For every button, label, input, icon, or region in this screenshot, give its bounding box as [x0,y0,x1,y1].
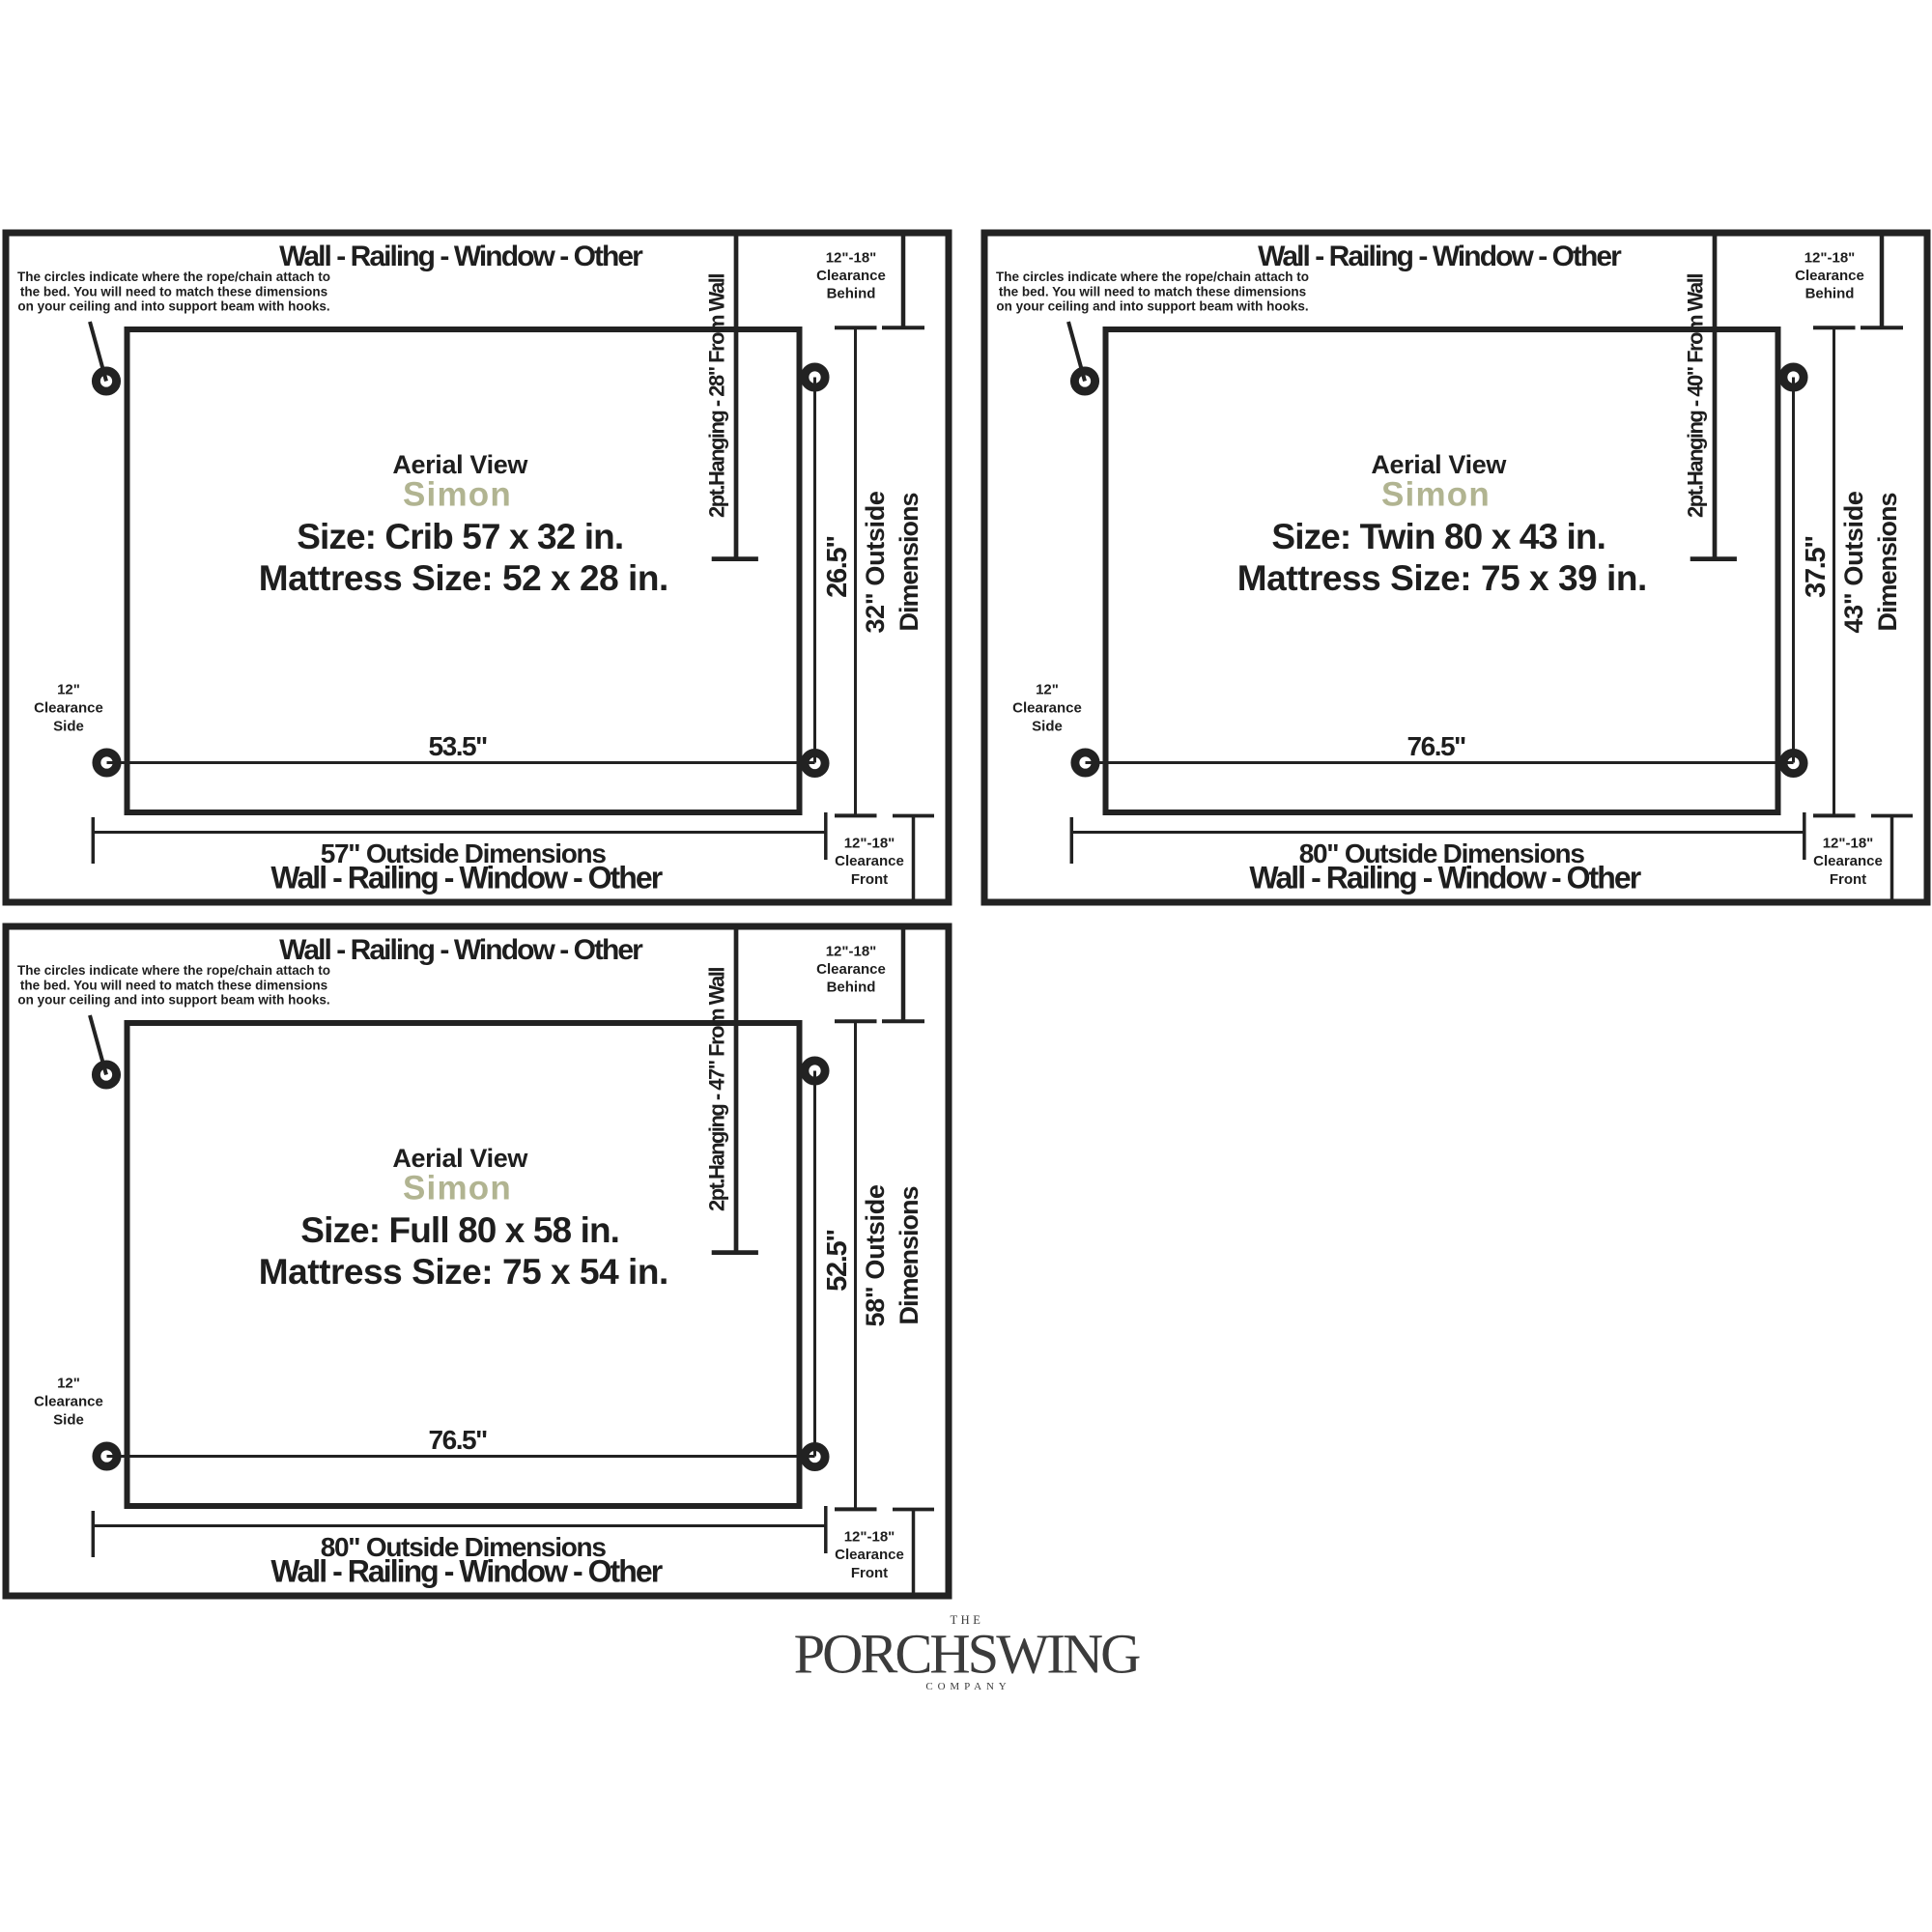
svg-text:Wall - Railing - Window - Othe: Wall - Railing - Window - Other [279,241,643,272]
svg-text:Clearance: Clearance [835,1547,904,1563]
svg-text:12"-18": 12"-18" [844,1528,895,1545]
svg-text:12": 12" [1036,682,1059,698]
svg-text:Mattress Size: 52 x 28 in.: Mattress Size: 52 x 28 in. [259,558,668,598]
svg-text:The circles indicate where the: The circles indicate where the rope/chai… [996,270,1309,284]
svg-text:37.5": 37.5" [1801,536,1832,598]
svg-text:Wall - Railing - Window - Othe: Wall - Railing - Window - Other [270,861,662,895]
svg-text:Clearance: Clearance [1813,853,1883,869]
svg-text:Mattress Size: 75 x 39 in.: Mattress Size: 75 x 39 in. [1237,558,1647,598]
svg-text:12"-18": 12"-18" [1823,835,1874,851]
svg-text:58" Outside: 58" Outside [861,1184,890,1326]
svg-text:Side: Side [53,1412,84,1429]
svg-text:COMPANY: COMPANY [925,1681,1010,1692]
svg-text:the bed. You will need to matc: the bed. You will need to match these di… [999,284,1306,298]
svg-text:PORCHSWING: PORCHSWING [794,1623,1141,1686]
svg-text:12"-18": 12"-18" [826,250,877,267]
svg-text:Clearance: Clearance [835,853,904,869]
svg-text:Clearance: Clearance [34,1394,103,1410]
svg-text:Aerial View: Aerial View [392,450,528,479]
svg-text:2pt.Hanging - 40" From Wall: 2pt.Hanging - 40" From Wall [1684,274,1708,518]
svg-text:Behind: Behind [1805,286,1855,302]
svg-text:Side: Side [1032,719,1063,735]
svg-text:Wall - Railing - Window - Othe: Wall - Railing - Window - Other [1258,241,1622,272]
svg-text:Aerial View: Aerial View [1371,450,1507,479]
svg-text:12": 12" [57,1376,80,1392]
svg-text:12"-18": 12"-18" [1804,250,1856,267]
svg-text:76.5": 76.5" [429,1425,487,1455]
svg-text:12": 12" [57,682,80,698]
svg-text:76.5": 76.5" [1407,731,1465,761]
svg-text:the bed. You will need to matc: the bed. You will need to match these di… [20,284,327,298]
svg-text:Dimensions: Dimensions [1873,493,1902,631]
svg-text:Clearance: Clearance [1795,268,1864,284]
svg-text:Clearance: Clearance [1012,700,1082,717]
svg-text:52.5": 52.5" [822,1230,853,1292]
svg-text:Wall - Railing - Window - Othe: Wall - Railing - Window - Other [279,934,643,966]
svg-text:Side: Side [53,719,84,735]
svg-text:2pt.Hanging - 28" From Wall: 2pt.Hanging - 28" From Wall [705,274,729,518]
svg-text:Dimensions: Dimensions [895,1186,923,1324]
svg-text:Mattress Size: 75 x 54 in.: Mattress Size: 75 x 54 in. [259,1252,668,1292]
svg-text:12"-18": 12"-18" [826,944,877,960]
svg-text:32" Outside: 32" Outside [861,491,890,633]
svg-text:Simon: Simon [1381,476,1491,514]
svg-text:Front: Front [1830,871,1866,888]
svg-text:on your ceiling and into suppo: on your ceiling and into support beam wi… [996,299,1308,314]
svg-text:26.5": 26.5" [822,536,853,598]
svg-text:Clearance: Clearance [816,268,886,284]
svg-text:Wall - Railing - Window - Othe: Wall - Railing - Window - Other [270,1554,662,1589]
svg-text:2pt.Hanging - 47" From Wall: 2pt.Hanging - 47" From Wall [705,968,729,1211]
svg-text:Front: Front [851,871,888,888]
svg-text:the bed. You will need to matc: the bed. You will need to match these di… [20,978,327,992]
svg-text:Size: Full 80 x 58 in.: Size: Full 80 x 58 in. [300,1210,619,1250]
svg-text:Simon: Simon [403,476,512,514]
svg-text:Size: Crib 57 x 32 in.: Size: Crib 57 x 32 in. [297,517,623,556]
svg-text:Simon: Simon [403,1170,512,1207]
svg-text:Dimensions: Dimensions [895,493,923,631]
svg-text:Aerial View: Aerial View [392,1144,528,1173]
svg-text:Behind: Behind [827,980,876,996]
svg-text:Clearance: Clearance [34,700,103,717]
svg-text:Wall - Railing - Window - Othe: Wall - Railing - Window - Other [1249,861,1640,895]
svg-text:Behind: Behind [827,286,876,302]
svg-text:The circles indicate where the: The circles indicate where the rope/chai… [17,963,330,978]
svg-text:on your ceiling and into suppo: on your ceiling and into support beam wi… [17,993,329,1008]
svg-text:53.5": 53.5" [429,731,487,761]
svg-text:on your ceiling and into suppo: on your ceiling and into support beam wi… [17,299,329,314]
svg-text:43" Outside: 43" Outside [1839,491,1868,633]
svg-text:Clearance: Clearance [816,961,886,978]
svg-text:Front: Front [851,1565,888,1581]
svg-text:Size: Twin 80 x 43 in.: Size: Twin 80 x 43 in. [1271,517,1605,556]
svg-text:The circles indicate where the: The circles indicate where the rope/chai… [17,270,330,284]
svg-text:12"-18": 12"-18" [844,835,895,851]
